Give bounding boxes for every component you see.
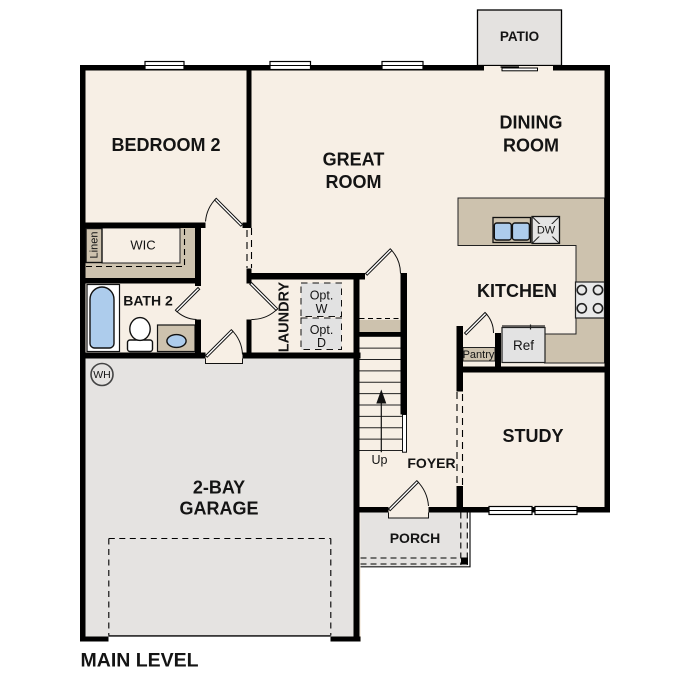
svg-text:BEDROOM 2: BEDROOM 2	[111, 135, 220, 155]
svg-text:2-BAY: 2-BAY	[193, 478, 245, 498]
svg-text:GARAGE: GARAGE	[179, 499, 258, 519]
svg-text:Ref: Ref	[513, 338, 534, 353]
svg-text:KITCHEN: KITCHEN	[477, 281, 557, 301]
svg-text:MAIN LEVEL: MAIN LEVEL	[81, 650, 199, 672]
svg-text:Linen: Linen	[89, 232, 101, 259]
svg-text:GREAT: GREAT	[323, 150, 385, 170]
svg-text:FOYER: FOYER	[407, 455, 455, 471]
svg-text:PATIO: PATIO	[500, 29, 539, 44]
svg-text:W: W	[316, 302, 328, 316]
svg-text:STUDY: STUDY	[502, 426, 563, 446]
svg-text:DW: DW	[537, 224, 556, 236]
svg-text:ROOM: ROOM	[326, 172, 382, 192]
svg-text:Up: Up	[372, 453, 388, 467]
svg-text:Opt.: Opt.	[310, 323, 334, 337]
svg-text:D: D	[317, 336, 326, 350]
svg-text:Opt.: Opt.	[310, 289, 334, 303]
svg-text:DINING: DINING	[500, 113, 563, 133]
svg-text:LAUNDRY: LAUNDRY	[277, 282, 293, 353]
svg-text:WIC: WIC	[130, 238, 155, 253]
svg-text:PORCH: PORCH	[390, 530, 441, 546]
svg-text:WH: WH	[93, 369, 111, 381]
svg-text:Pantry: Pantry	[463, 349, 495, 361]
svg-text:ROOM: ROOM	[503, 136, 559, 156]
svg-text:BATH 2: BATH 2	[123, 293, 173, 309]
